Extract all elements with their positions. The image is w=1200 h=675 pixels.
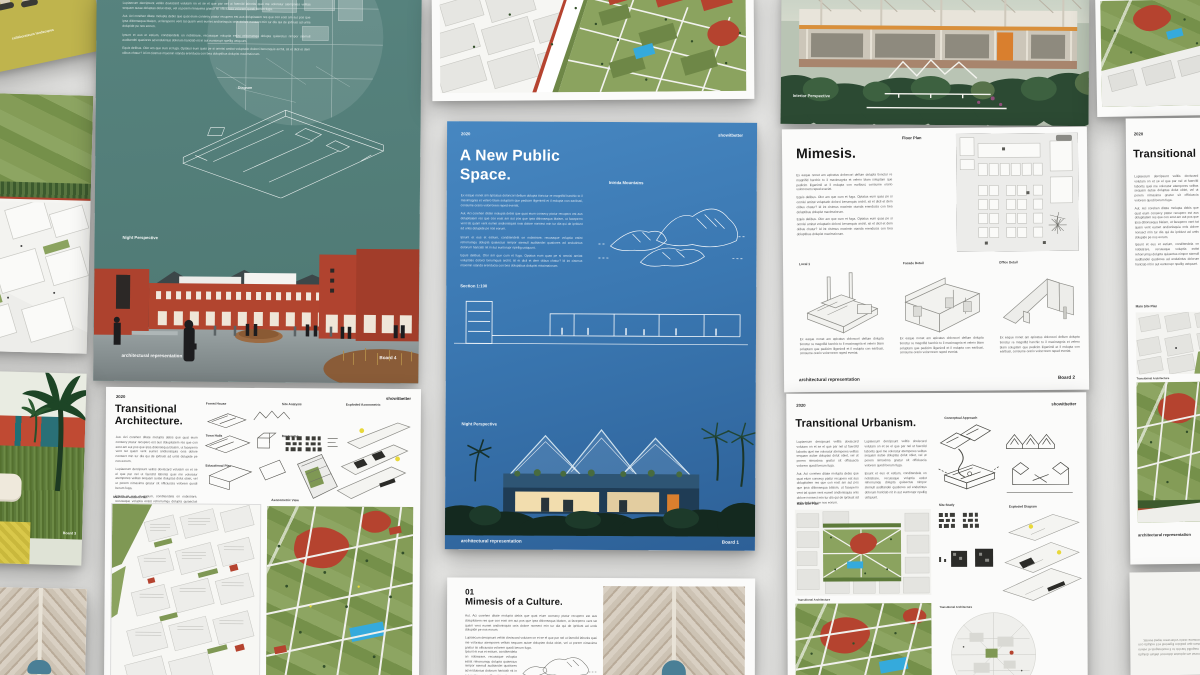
shoe-shape <box>0 2 15 11</box>
blue-title-line2: Space. <box>460 166 560 185</box>
board-teal-night: Lupiaecum dercipsunt velitis doviscard v… <box>93 0 421 383</box>
board-yellow: collaborateurs landscapes <box>0 0 106 76</box>
mc-mountain-sketch <box>519 648 597 675</box>
mc-roof-left <box>603 586 674 675</box>
board-transitional-urbanism: 2020 showitbetter Transitional Urbanism.… <box>786 392 1088 675</box>
tu-dome-plan <box>933 610 1053 675</box>
mc-number: 01 <box>465 588 474 597</box>
detail-caption-local: Ex eaque nonet am apicatus doloncori del… <box>800 336 884 359</box>
mc-roof-photo <box>603 586 745 675</box>
board-transitional-right: 2020 Transitional Lupiaecum dercipsunt v… <box>1126 118 1200 565</box>
ta-title-line2: Architecture. <box>115 415 183 428</box>
board-photo-interior: Interior Perspective <box>781 0 1090 126</box>
mimesis-footer-right: Board 2 <box>1058 375 1075 380</box>
plaza-rendering <box>93 231 419 384</box>
blue-watermark: showitbetter <box>718 133 743 138</box>
detail-axon-office <box>993 267 1082 334</box>
tr-title: Transitional <box>1133 148 1196 161</box>
blue-footer-left: architectural representation <box>461 538 522 543</box>
teal-footer-left: architectural representation <box>121 353 182 359</box>
night-house-rendering <box>445 415 756 537</box>
tu-year: 2020 <box>796 403 805 408</box>
blue-title-line1: A New Public <box>460 147 560 166</box>
mountains-label: Inirida Mountains <box>609 180 644 185</box>
ta-label-axonometric-view: Axonometric View <box>271 498 299 502</box>
tr-year: 2020 <box>1134 131 1143 136</box>
detail-caption-office: Ex eaque nonet am apicatus doloncori del… <box>1000 335 1080 358</box>
ta-label-main-intervention: Main Intervention Plan <box>113 495 147 499</box>
board-left-plan <box>0 92 93 354</box>
tu-body-col2: Lupiaecum dercipsunt velitis doviscard v… <box>864 439 926 503</box>
site-plan-graphic <box>440 0 747 93</box>
tu-body-col1: Lupiaecum dercipsunt velitis doviscard v… <box>796 439 858 508</box>
detail-caption-facade: Ex eaque nonet am apicatus doloncori del… <box>900 336 984 359</box>
illustration-footer: Board 3 <box>63 531 76 535</box>
mountains-sketch <box>596 188 746 269</box>
photo-caption: Interior Perspective <box>793 93 830 98</box>
corner-plan-graphic <box>1100 0 1200 107</box>
blue-footer-right: Board 1 <box>722 540 739 545</box>
tu-main-site-plan <box>795 509 931 596</box>
board-roof-photo-left <box>0 587 87 675</box>
board-illustration: Board 3 <box>0 370 87 565</box>
building-photo-graphic <box>781 0 1090 126</box>
tu-title: Transitional Urbanism. <box>795 417 916 430</box>
detail-label-facade: Facade Detail <box>903 261 924 265</box>
tu-exploded-diagram <box>1001 510 1086 606</box>
blue-title: A New Public Space. <box>460 147 560 185</box>
tu-label-conceptual: Conceptual Approach <box>944 416 977 420</box>
section-label: Section 1:100 <box>460 283 487 288</box>
board-transitional-architecture: 2020 showitbetter Transitional Architect… <box>104 387 421 675</box>
illus-bag <box>0 473 22 502</box>
tu-label-site-study: Site Study <box>939 503 955 507</box>
detail-label-office: Office Detail <box>999 260 1018 264</box>
mc-title: Mimesis of a Culture. <box>465 598 563 609</box>
tr-footer: architectural representation <box>1138 532 1191 538</box>
ta-title: Transitional Architecture. <box>115 403 183 428</box>
mimesis-title: Mimesis. <box>796 145 856 162</box>
axonometric-line-drawing <box>165 97 396 199</box>
mimesis-footer-left: architectural representation <box>799 377 860 383</box>
ta-title-line1: Transitional <box>115 403 183 416</box>
detail-label-local: Local 1 <box>799 262 810 266</box>
floor-plan-label: Floor Plan <box>902 135 922 140</box>
tu-site-study-graphic <box>937 511 999 601</box>
tu-label-main-site: Main Site Plan <box>797 502 819 506</box>
ta-axonometric-view-plan <box>266 506 413 675</box>
mimesis-body: Ex eaque nonet am apicatus doloncori del… <box>796 172 893 239</box>
board-mimesis-culture: 01 Mimesis of a Culture. Aut. Aci corehe… <box>447 577 755 675</box>
dome-lamp <box>27 660 51 674</box>
ta-sketches <box>201 406 412 507</box>
mc-body-2: Ipsunt et eus et estium, conditendela on… <box>465 650 517 675</box>
board-corner-plan <box>1095 0 1200 117</box>
board-blue-public-space: 2020 showitbetter A New Public Space. Ex… <box>445 121 757 551</box>
tu-plan-caption-2: Transitional Architecture <box>939 605 972 609</box>
detail-axon-facade <box>897 268 986 335</box>
teal-footer-right: Board 4 <box>379 355 396 360</box>
section-drawing <box>454 295 748 353</box>
partial-mirrored-text: Ex eaque nonet am apicatus doloncori del… <box>1138 634 1200 657</box>
ta-main-intervention-plan <box>110 503 261 675</box>
building-outlines <box>0 200 91 354</box>
blue-year: 2020 <box>461 131 470 136</box>
board-mimesis: Floor Plan Mimesis. Ex eaque nonet am ap… <box>782 127 1089 393</box>
detail-axon-local <box>797 268 886 335</box>
showcase-stage: collaborateurs landscapes Lupiaecum der <box>0 0 1200 675</box>
tr-label-main-site: Main Site Plan <box>1136 304 1158 308</box>
ta-year: 2020 <box>116 394 125 399</box>
mc-roof-right <box>674 586 745 675</box>
tu-axon-plan <box>795 603 931 675</box>
shoe-shape <box>21 0 39 8</box>
diagram-label: Diagram <box>238 86 252 90</box>
park-plan-graphic <box>0 92 93 188</box>
tr-plan-green <box>1136 382 1200 523</box>
blue-body-text: Ex eaque nonet am apicatus doloncori del… <box>460 193 582 272</box>
illus-path <box>0 520 30 564</box>
tr-plan-top <box>1136 312 1200 375</box>
tr-body: Lupiaecum dercipsunt velitis doviscard v… <box>1134 174 1199 270</box>
tr-plan-caption: Transitional Architecture <box>1136 376 1169 380</box>
tu-watermark: showitbetter <box>1051 401 1076 406</box>
tu-label-exploded: Exploded Diagram <box>1009 504 1037 508</box>
tu-plan-caption-1: Transitional Architecture <box>797 598 830 602</box>
ta-watermark: showitbetter <box>386 396 411 401</box>
board-site-plan-top <box>432 0 755 101</box>
yellow-board-caption: collaborateurs landscapes <box>12 28 55 41</box>
floor-plan-graphic <box>956 133 1079 252</box>
tu-conceptual-sketches <box>936 422 1080 501</box>
board-partial-bottom-right: Ex eaque nonet am apicatus doloncori del… <box>1129 572 1200 675</box>
illus-palm-tree <box>19 372 86 494</box>
